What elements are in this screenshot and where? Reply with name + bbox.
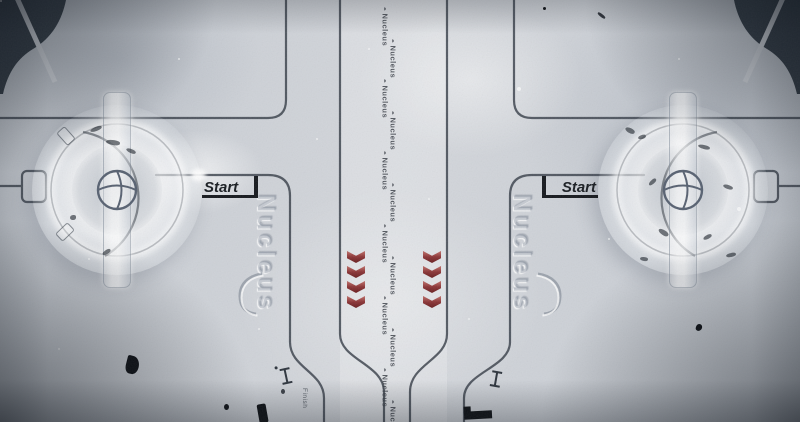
chevron-down-icon xyxy=(347,251,365,263)
chevron-column-left xyxy=(347,251,365,311)
dust-specks xyxy=(0,0,2,2)
nucleus-channel-text-b: ◗Nucleus◗Nucleus◗Nucleus◗Nucleus◗Nucleus… xyxy=(389,36,397,422)
nucleus-channel-item: ◗Nucleus xyxy=(389,253,398,295)
game-board-scene: Nucleus Nucleus xyxy=(0,0,800,422)
nucleus-channel-item: ◗Nucleus xyxy=(389,36,398,78)
chevron-down-icon xyxy=(347,266,365,278)
finish-label: Finish xyxy=(301,388,308,408)
bright-spot xyxy=(191,169,206,181)
start-marker-right: Start xyxy=(546,179,598,198)
nucleus-logo-icon xyxy=(680,0,800,110)
chevron-down-icon xyxy=(347,281,365,293)
ink-speck xyxy=(543,7,546,10)
nucleus-channel-item: ◗Nucleus xyxy=(389,325,398,367)
dial-hub-icon xyxy=(32,105,202,275)
ink-speck xyxy=(281,389,285,394)
chevron-down-icon xyxy=(423,296,441,308)
nucleus-channel-item: ◗Nucleus xyxy=(389,397,398,422)
chevron-down-icon xyxy=(347,296,365,308)
chevron-down-icon xyxy=(423,251,441,263)
nucleus-channel-text-a: ◗Nucleus◗Nucleus◗Nucleus◗Nucleus◗Nucleus… xyxy=(381,4,389,422)
start-label: Start xyxy=(204,179,238,196)
nucleus-logo-icon xyxy=(0,0,120,110)
chevron-column-right xyxy=(423,251,441,311)
ink-speck xyxy=(224,404,229,410)
nucleus-wall-label-right: Nucleus xyxy=(507,194,536,312)
dial-knob-left[interactable] xyxy=(32,105,202,275)
dial-knob-right[interactable] xyxy=(598,105,768,275)
nucleus-channel-item: ◗Nucleus xyxy=(389,108,398,150)
start-label: Start xyxy=(562,179,596,196)
chevron-down-icon xyxy=(423,266,441,278)
nucleus-channel-item: ◗Nucleus xyxy=(389,180,398,222)
dial-hub-icon xyxy=(598,105,768,275)
nucleus-wall-label-left: Nucleus xyxy=(251,194,280,312)
start-marker-left: Start xyxy=(202,179,254,198)
chevron-down-icon xyxy=(423,281,441,293)
debris-speck xyxy=(70,215,76,220)
